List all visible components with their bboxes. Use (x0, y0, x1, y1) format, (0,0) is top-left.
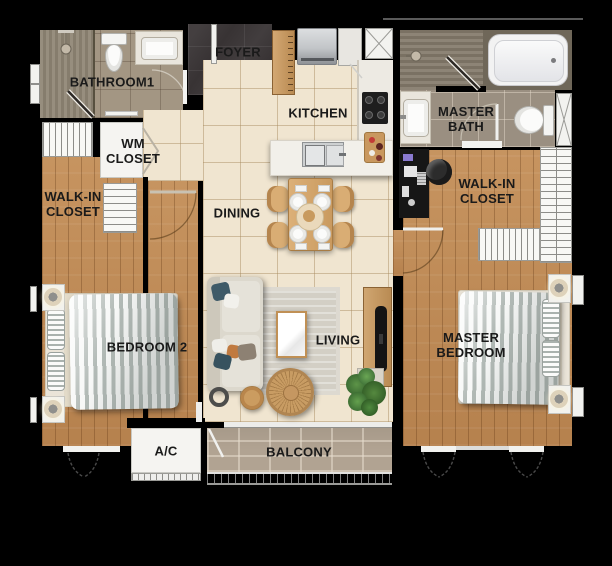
plant-leaves (361, 399, 378, 416)
throw-pillow-white (211, 338, 227, 352)
window-bathroom1 (30, 64, 40, 104)
centerpiece (296, 203, 324, 231)
tv (375, 306, 387, 372)
side-table (240, 386, 264, 410)
throw-pillow-white (223, 293, 240, 309)
vanity-sink (141, 37, 178, 60)
label-dining: DINING (214, 206, 261, 221)
master-door-opening (393, 230, 403, 276)
ac-louver (131, 473, 201, 481)
window-bedroom2-b (30, 397, 37, 423)
label-wm-closet: WM CLOSET (106, 136, 160, 166)
pantry-cabinet (272, 30, 295, 95)
label-balcony: BALCONY (266, 445, 332, 460)
balcony-door-track (224, 422, 392, 428)
shaft-kitchen (365, 28, 393, 59)
shelf-divider (556, 148, 557, 262)
master-shower-floor (400, 30, 483, 90)
closet-shelf-left-mid (103, 183, 137, 233)
kitchen-sink (302, 142, 344, 167)
label-foyer: FOYER (215, 45, 261, 60)
closet-desk (399, 149, 429, 218)
tv-stand (379, 334, 383, 344)
bathroom1-mat (105, 111, 138, 116)
desk-item-jar (408, 199, 415, 206)
balcony-railing (207, 472, 392, 485)
rattan-chair (266, 368, 314, 416)
dining-chair (332, 222, 354, 248)
master-vanity-sink (403, 99, 429, 137)
sill-master-door-b (509, 446, 544, 452)
sill-master-door-a (421, 446, 456, 452)
burner (365, 96, 373, 104)
label-walk-in-closet-right: WALK-IN CLOSET (459, 176, 516, 206)
shower-head-bar (58, 30, 74, 33)
fridge-handle (301, 58, 334, 61)
dining-chair (267, 186, 289, 212)
cabinet-shelf-ticks (288, 33, 293, 91)
floorplan: BATHROOM1 FOYER KITCHEN MASTER BATH WM C… (0, 0, 612, 566)
lamp (44, 400, 62, 418)
burner (377, 111, 385, 119)
desk-chair (426, 159, 452, 185)
lamp (550, 279, 568, 297)
cutting-board (364, 132, 385, 163)
master-toilet-bowl (514, 106, 544, 134)
master-toilet-tank (543, 105, 554, 136)
bathtub-drain (551, 58, 556, 63)
label-walk-in-closet-left: WALK-IN CLOSET (45, 189, 102, 219)
lamp (550, 390, 568, 408)
desk-item-keypad (417, 172, 426, 185)
closet-shelf-right (540, 147, 572, 263)
living-west-door (196, 402, 202, 422)
bathtub (488, 34, 568, 86)
label-living: LIVING (316, 333, 361, 348)
label-bathroom1: BATHROOM1 (70, 75, 155, 90)
window-master-a (572, 275, 584, 305)
burner (365, 111, 373, 119)
desk-item-machine (404, 166, 417, 177)
closet-shelf-right-bottom (478, 228, 540, 261)
food-item (376, 143, 383, 150)
napkin (295, 243, 307, 250)
closet-shelf-left-top (42, 122, 93, 157)
window-master-b (572, 387, 584, 417)
food-item (376, 155, 382, 161)
refrigerator (297, 28, 337, 65)
cooktop (362, 92, 388, 124)
dining-chair (267, 222, 289, 248)
coffee-table (276, 311, 307, 358)
lamp (44, 288, 62, 306)
napkin (318, 185, 330, 192)
floor-ring-decor (209, 387, 229, 407)
master-pillow (542, 340, 560, 377)
label-bedroom2: BEDROOM 2 (107, 340, 188, 355)
sill-bedroom2 (63, 446, 120, 452)
rattan-chair-center (283, 385, 299, 401)
master-pillow (542, 299, 560, 338)
window-bedroom2-a (30, 286, 37, 312)
sink-faucet (339, 153, 346, 156)
bed2-pillow (47, 309, 65, 350)
napkin (295, 185, 307, 192)
sofa-throw-blanket (237, 343, 257, 361)
dining-chair (332, 186, 354, 212)
wall-shower-stub (436, 86, 486, 92)
desk-item-box (402, 186, 409, 197)
master-bath-threshold (462, 141, 502, 148)
bread-basket (303, 210, 315, 222)
food-item (369, 150, 375, 156)
label-master-bedroom: MASTER BEDROOM (436, 330, 505, 360)
wall-hall-closet (143, 177, 148, 240)
sink-basin (305, 145, 325, 166)
shaft-master-bath (556, 93, 572, 146)
desk-item-laptop (403, 154, 413, 161)
napkin (318, 243, 330, 250)
food-item (369, 137, 375, 143)
label-ac: A/C (155, 444, 178, 459)
bed2-pillow (47, 352, 65, 391)
label-kitchen: KITCHEN (288, 106, 347, 121)
wall-ac (127, 418, 205, 428)
master-sink-faucet (400, 115, 406, 119)
label-master-bath: MASTER BATH (438, 104, 494, 134)
burner (377, 96, 385, 104)
